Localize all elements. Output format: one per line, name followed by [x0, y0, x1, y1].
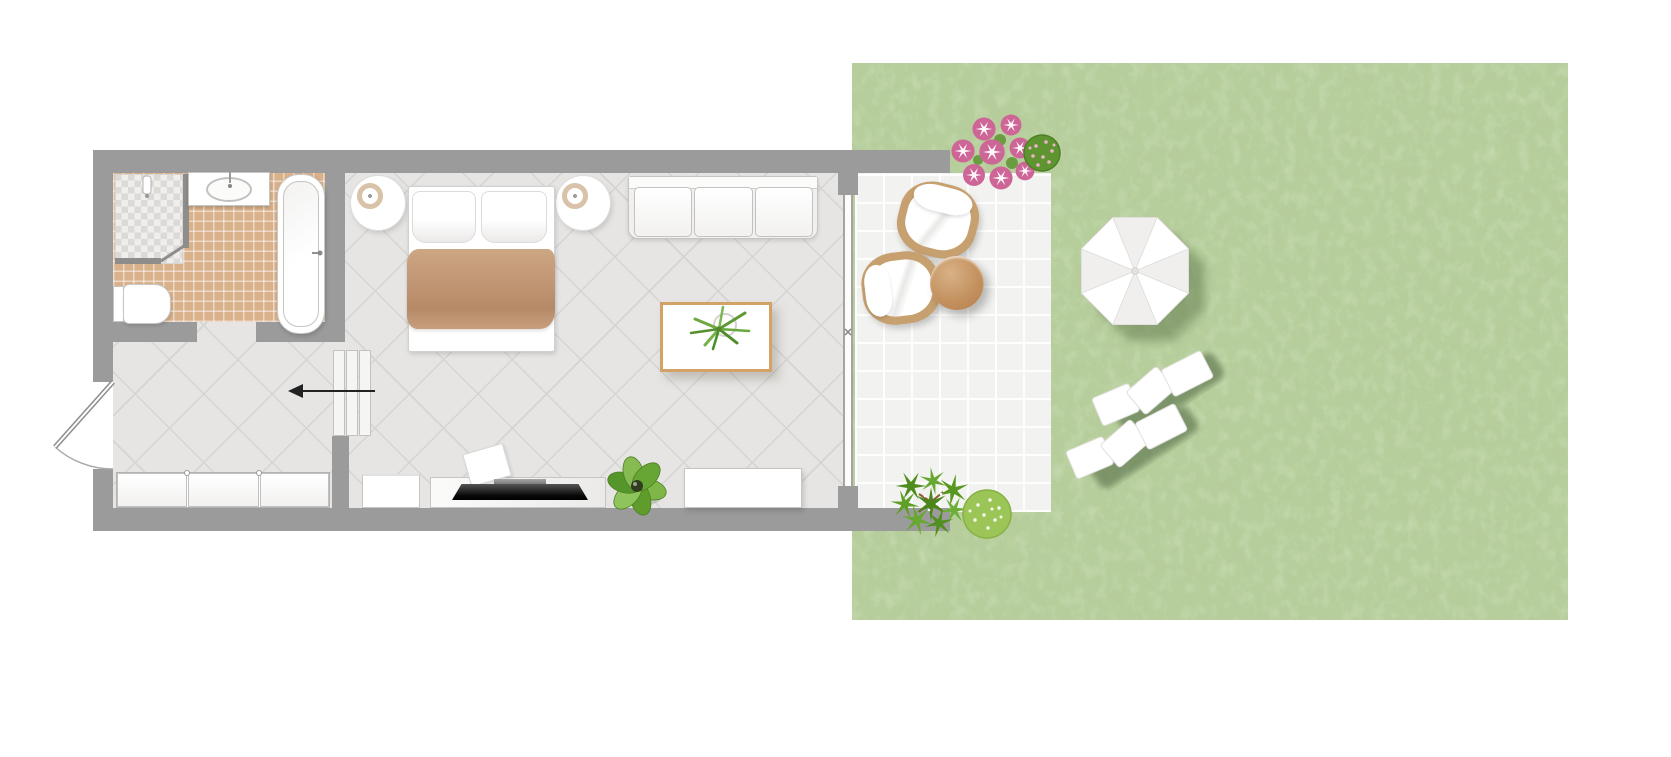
- bathtub-inner-rim: [283, 181, 319, 327]
- coffee-table: [660, 302, 772, 372]
- small-cabinet: [362, 474, 420, 508]
- sofa-cushion: [634, 187, 692, 237]
- wall-terrace-stub-bottom: [838, 486, 858, 508]
- sideboard: [684, 468, 802, 508]
- wardrobe: [116, 472, 330, 508]
- wardrobe-door: [117, 473, 187, 507]
- bedside-lamp-right: [562, 183, 588, 209]
- entry-arrow-head: [288, 384, 303, 398]
- floor-plan-canvas: [0, 0, 1671, 757]
- double-bed: [408, 186, 555, 352]
- bedside-lamp-left: [357, 183, 383, 209]
- shower-tray: [115, 174, 183, 264]
- wardrobe-door: [188, 473, 259, 507]
- toilet: [123, 284, 171, 324]
- bed-blanket: [407, 249, 555, 329]
- entry-arrow-line: [303, 390, 375, 392]
- wall-terrace-stub-top: [838, 173, 858, 195]
- wardrobe-door: [260, 473, 329, 507]
- shower-wall-bottom: [115, 258, 161, 264]
- wall-bottom: [93, 508, 950, 531]
- sofa-cushion: [694, 187, 753, 237]
- wall-left-lower: [93, 469, 113, 531]
- entry-door: [55, 382, 113, 469]
- wall-bathroom-bottom-left: [93, 322, 197, 342]
- step: [333, 350, 345, 436]
- wall-bathroom-right: [325, 173, 345, 342]
- tv-flatscreen: [452, 484, 588, 500]
- pillow-right: [481, 191, 547, 243]
- pillow-left: [412, 191, 476, 243]
- wall-left-upper: [93, 150, 113, 382]
- sofa-cushion: [755, 187, 813, 237]
- tv-stand: [494, 479, 546, 484]
- sofa: [628, 176, 818, 239]
- wall-top: [93, 150, 950, 173]
- washbasin: [206, 177, 252, 202]
- terrace-round-table: [930, 256, 984, 310]
- step: [346, 350, 358, 436]
- wall-hall-divider: [332, 436, 349, 508]
- sliding-glass-door: [843, 195, 853, 486]
- step: [359, 350, 371, 436]
